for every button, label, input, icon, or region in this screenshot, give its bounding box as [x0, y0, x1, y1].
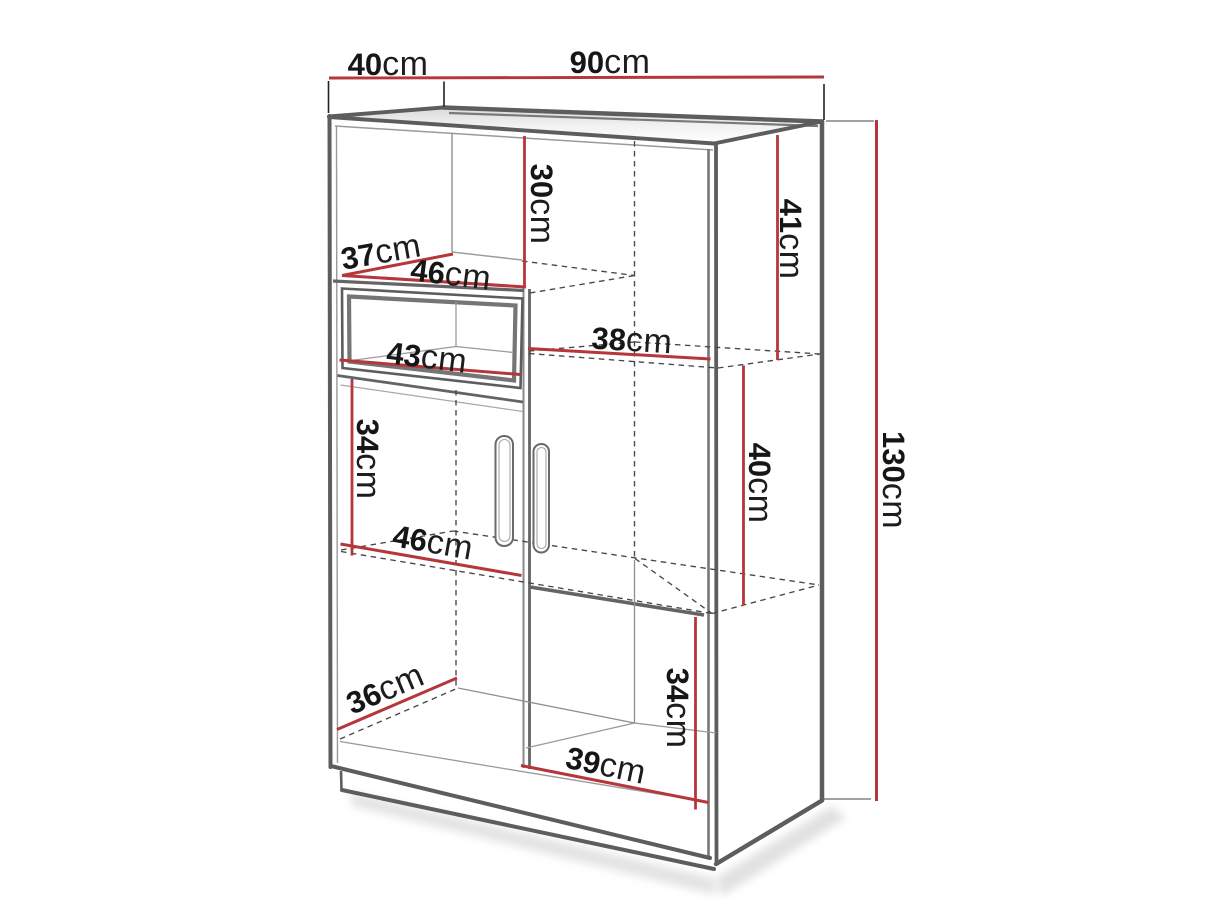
- svg-text:40cm: 40cm: [741, 443, 779, 524]
- svg-text:90cm: 90cm: [570, 43, 651, 81]
- svg-text:41cm: 41cm: [772, 199, 810, 280]
- svg-text:30cm: 30cm: [523, 164, 561, 245]
- svg-text:34cm: 34cm: [659, 668, 697, 749]
- svg-text:40cm: 40cm: [348, 45, 429, 83]
- svg-text:38cm: 38cm: [591, 319, 674, 362]
- svg-text:34cm: 34cm: [349, 419, 387, 500]
- svg-text:130cm: 130cm: [875, 431, 913, 529]
